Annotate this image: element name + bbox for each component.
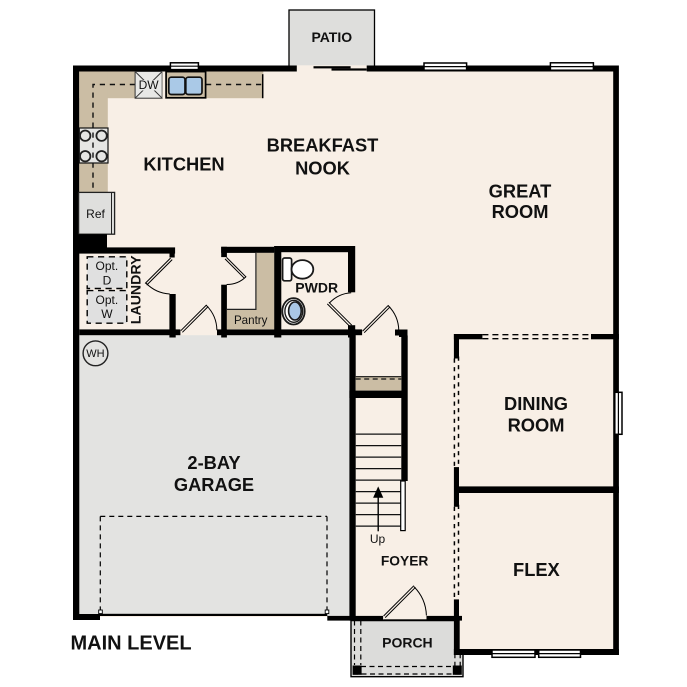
svg-text:Ref: Ref <box>86 207 105 221</box>
svg-text:DW: DW <box>139 78 160 92</box>
svg-text:W: W <box>101 307 113 321</box>
svg-text:MAIN LEVEL: MAIN LEVEL <box>71 633 192 655</box>
svg-text:Opt.: Opt. <box>96 259 119 273</box>
svg-text:Opt.: Opt. <box>96 293 119 307</box>
svg-text:ROOM: ROOM <box>492 201 549 222</box>
svg-text:KITCHEN: KITCHEN <box>143 153 224 174</box>
svg-text:WH: WH <box>86 348 104 360</box>
svg-text:PORCH: PORCH <box>382 635 433 651</box>
svg-text:ROOM: ROOM <box>508 415 565 436</box>
svg-text:FOYER: FOYER <box>381 553 429 568</box>
svg-text:BREAKFAST: BREAKFAST <box>267 135 379 156</box>
svg-text:NOOK: NOOK <box>295 158 351 179</box>
svg-text:D: D <box>103 273 112 287</box>
svg-text:Pantry: Pantry <box>234 314 268 327</box>
svg-text:PWDR: PWDR <box>295 279 338 295</box>
svg-text:GARAGE: GARAGE <box>174 474 254 495</box>
svg-text:PATIO: PATIO <box>311 29 352 45</box>
svg-text:Up: Up <box>370 532 386 546</box>
svg-text:GREAT: GREAT <box>489 181 552 202</box>
svg-text:LAUNDRY: LAUNDRY <box>128 255 144 324</box>
svg-text:DINING: DINING <box>504 393 568 414</box>
svg-text:FLEX: FLEX <box>513 559 561 580</box>
svg-text:2-BAY: 2-BAY <box>187 452 240 473</box>
